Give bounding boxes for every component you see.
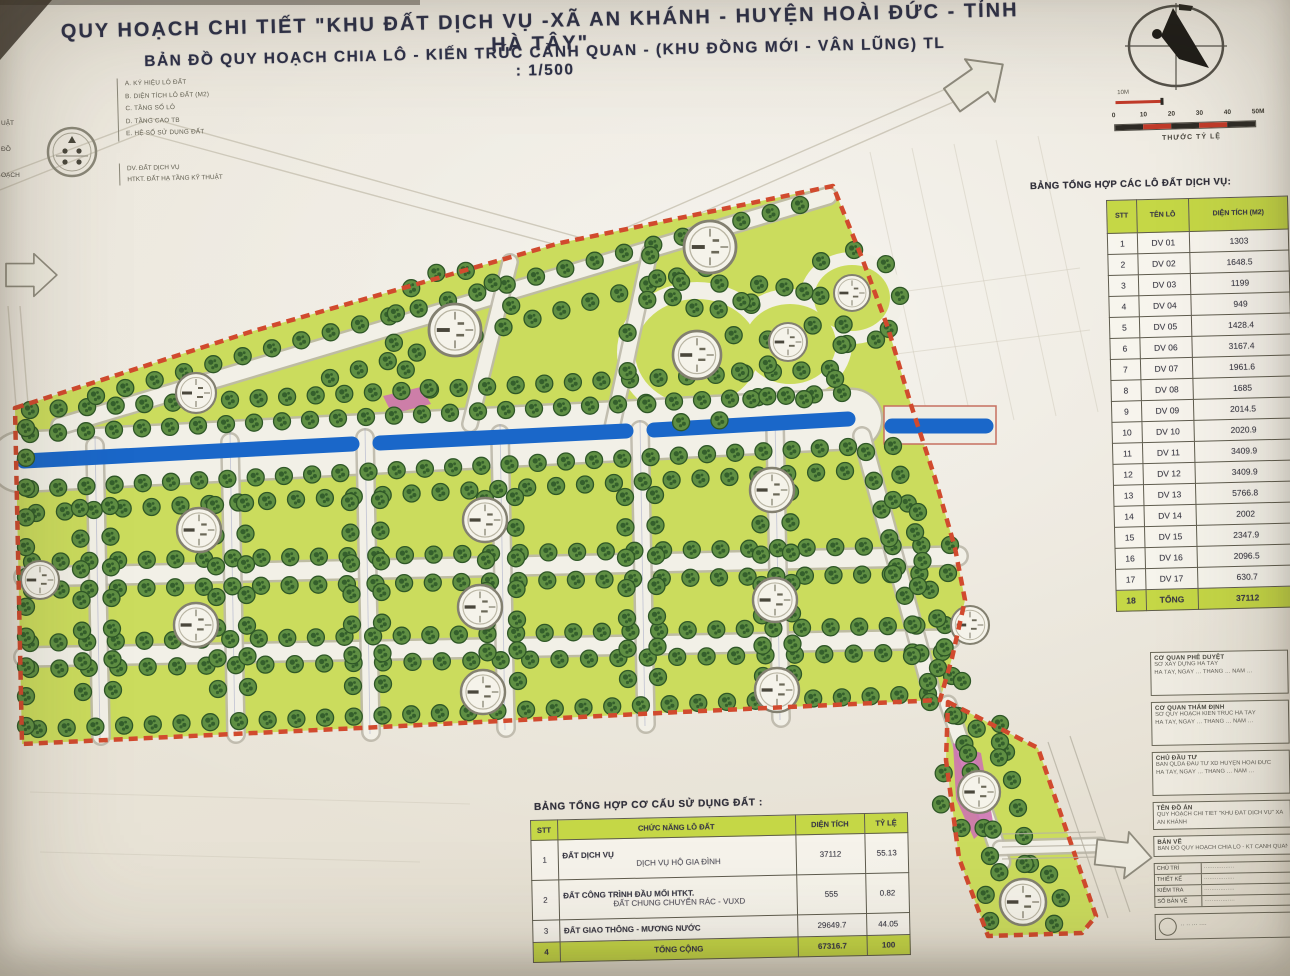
tree-icon: [495, 319, 512, 336]
tree-icon: [396, 575, 413, 592]
tree-icon: [364, 384, 381, 401]
tree-icon: [72, 530, 89, 547]
lot-symbol-icon: [958, 771, 1000, 813]
tree-icon: [605, 475, 622, 492]
table-cell: 3409.9: [1194, 439, 1290, 462]
table-cell: 100: [867, 935, 911, 956]
scale-tick-label: 10: [1140, 111, 1147, 118]
scale-mini-segment: [1115, 100, 1161, 104]
table-cell: 7: [1110, 359, 1140, 381]
tree-icon: [648, 547, 665, 564]
tree-icon: [237, 495, 254, 512]
tree-icon: [345, 708, 362, 725]
tree-icon: [648, 578, 665, 595]
scale-segment: [1115, 124, 1143, 130]
tree-icon: [274, 413, 291, 430]
tree-icon: [991, 749, 1008, 766]
tree-icon: [593, 623, 610, 640]
tree-icon: [173, 715, 190, 732]
tree-icon: [804, 317, 821, 334]
tree-icon: [385, 334, 402, 351]
tree-icon: [619, 610, 636, 627]
tree-icon: [851, 618, 868, 635]
tree-icon: [372, 492, 389, 509]
tree-icon: [881, 530, 898, 547]
lot-symbol-icon: [463, 498, 507, 542]
table-cell: DV 02: [1137, 252, 1190, 274]
tree-icon: [259, 712, 276, 729]
tree-icon: [106, 476, 123, 493]
tree-icon: [231, 713, 248, 730]
tree-icon: [733, 293, 750, 310]
tree-icon: [393, 383, 410, 400]
tree-icon: [575, 699, 592, 716]
column-header: STT: [1107, 200, 1137, 234]
tree-icon: [387, 305, 404, 322]
edge-fragment: ĐỒ: [1, 146, 11, 153]
tree-icon: [374, 645, 391, 662]
tree-icon: [463, 652, 480, 669]
tree-icon: [336, 385, 353, 402]
lot-symbol-icon: [750, 468, 794, 512]
tree-icon: [374, 614, 391, 631]
table-cell: 37112: [1198, 586, 1290, 609]
edge-fragment: UẬT: [1, 120, 14, 127]
tree-icon: [728, 647, 745, 664]
tree-icon: [350, 361, 367, 378]
table-cell: 5766.8: [1195, 481, 1290, 504]
tree-icon: [647, 487, 664, 504]
tree-icon: [498, 402, 515, 419]
tree-icon: [139, 658, 156, 675]
tree-icon: [1010, 800, 1027, 817]
tree-icon: [907, 524, 924, 541]
table-cell: 1: [531, 840, 558, 881]
tree-icon: [929, 610, 946, 627]
tree-icon: [18, 420, 35, 437]
tree-icon: [783, 441, 800, 458]
scale-segment: [1199, 122, 1227, 128]
tree-icon: [619, 324, 636, 341]
table-cell: DV 07: [1140, 357, 1193, 379]
tree-icon: [528, 268, 545, 285]
tree-icon: [708, 621, 725, 638]
tree-icon: [816, 646, 833, 663]
tree-icon: [190, 417, 207, 434]
tree-icon: [403, 485, 420, 502]
table-cell: DV 10: [1142, 420, 1195, 442]
tree-icon: [679, 622, 696, 639]
table-cell: 1: [1107, 233, 1137, 255]
column-header: TÊN LÔ: [1136, 198, 1189, 232]
tree-icon: [73, 592, 90, 609]
tree-icon: [960, 745, 977, 762]
tree-icon: [682, 569, 699, 586]
tree-icon: [205, 356, 222, 373]
tree-icon: [536, 375, 553, 392]
tree-icon: [686, 300, 703, 317]
tree-icon: [116, 717, 133, 734]
scale-bar: 10M 01020304050M THƯỚC TỶ LỆ: [1105, 86, 1282, 153]
lot-symbol-icon: [753, 578, 797, 622]
tree-icon: [518, 701, 535, 718]
tree-icon: [553, 302, 570, 319]
table-cell: 5: [1109, 317, 1139, 339]
tree-icon: [892, 287, 909, 304]
tree-icon: [569, 543, 586, 560]
tree-icon: [984, 821, 1001, 838]
tree-icon: [835, 316, 852, 333]
tree-icon: [106, 421, 123, 438]
title-block-staff: CHỦ TRÌ·················THIẾT KẾ········…: [1154, 860, 1290, 907]
tree-icon: [343, 586, 360, 603]
tree-icon: [794, 619, 811, 636]
lot-symbol-icon: [176, 373, 216, 413]
tree-icon: [694, 392, 711, 409]
tree-icon: [117, 380, 134, 397]
tree-icon: [50, 634, 67, 651]
tree-icon: [784, 635, 801, 652]
tree-icon: [751, 276, 768, 293]
stamp-circle-icon: [1159, 917, 1177, 935]
tree-icon: [551, 651, 568, 668]
tree-icon: [879, 618, 896, 635]
tree-icon: [642, 247, 659, 264]
table-cell: DV 14: [1144, 504, 1197, 526]
tree-icon: [234, 348, 251, 365]
tree-icon: [755, 443, 772, 460]
table-cell: ĐẤT DỊCH VỤDỊCH VỤ HỘ GIA ĐÌNH: [557, 835, 796, 880]
tree-icon: [288, 491, 305, 508]
tree-icon: [904, 648, 921, 665]
table-total-row: 18TỔNG37112: [1116, 586, 1290, 611]
tree-icon: [507, 519, 524, 536]
tree-icon: [281, 577, 298, 594]
table-cell: DV 03: [1138, 273, 1191, 295]
table-cell: TỔNG CỘNG: [560, 937, 798, 962]
tree-icon: [711, 275, 728, 292]
title-block-stamp: ·· ·· ··· ····: [1155, 911, 1290, 939]
tree-icon: [778, 387, 795, 404]
lot-symbol-icon: [21, 561, 59, 599]
table-cell: 630.7: [1197, 565, 1290, 588]
lot-symbol-icon: [834, 275, 870, 311]
tree-icon: [619, 640, 636, 657]
table-cell: 17: [1116, 569, 1146, 591]
tree-icon: [74, 653, 91, 670]
tree-icon: [410, 300, 427, 317]
tree-icon: [812, 287, 829, 304]
title-block-section: CHỦ ĐẦU TƯBAN QLDA ĐẦU TƯ XD HUYỆN HOÀI …: [1152, 750, 1290, 796]
tree-icon: [162, 418, 179, 435]
scale-tick-label: 0: [1112, 112, 1116, 119]
tree-icon: [375, 676, 392, 693]
table-cell: 2014.5: [1193, 397, 1290, 420]
tree-icon: [433, 653, 450, 670]
tree-icon: [617, 519, 634, 536]
table-cell: DV 04: [1138, 294, 1191, 316]
tree-icon: [138, 579, 155, 596]
tree-icon: [673, 273, 690, 290]
tree-icon: [442, 404, 459, 421]
table-cell: 1685: [1193, 376, 1290, 399]
tree-icon: [1052, 890, 1069, 907]
tree-icon: [808, 464, 825, 481]
tree-icon: [620, 671, 637, 688]
tree-icon: [238, 587, 255, 604]
tree-icon: [202, 714, 219, 731]
tree-icon: [360, 463, 377, 480]
tree-icon: [279, 629, 296, 646]
photo-edge-shadow: [0, 0, 420, 5]
tree-icon: [610, 396, 627, 413]
tree-icon: [450, 380, 467, 397]
tree-icon: [833, 336, 850, 353]
tree-icon: [683, 541, 700, 558]
tree-icon: [792, 197, 809, 214]
tree-icon: [307, 387, 324, 404]
table-cell: 12: [1113, 464, 1143, 486]
tree-icon: [743, 391, 760, 408]
tree-icon: [431, 705, 448, 722]
table-cell: 3409.9: [1195, 460, 1290, 483]
title-block-drawing: BẢN VẼ BẢN ĐỒ QUY HOẠCH CHIA LÔ - KT CẢN…: [1153, 834, 1290, 857]
tree-icon: [478, 552, 495, 569]
tree-icon: [577, 476, 594, 493]
tree-icon: [722, 390, 739, 407]
tree-icon: [293, 332, 310, 349]
tree-icon: [56, 503, 73, 520]
tree-icon: [253, 549, 270, 566]
tree-icon: [619, 363, 636, 380]
tree-icon: [564, 374, 581, 391]
tree-icon: [210, 681, 227, 698]
tree-icon: [698, 648, 715, 665]
tree-icon: [18, 449, 35, 466]
function-label: ĐẤT GIAO THÔNG - MƯƠNG NƯỚC: [564, 921, 796, 935]
tree-icon: [910, 578, 927, 595]
tree-icon: [877, 256, 894, 273]
tree-icon: [445, 459, 462, 476]
scale-tick-label: 30: [1196, 110, 1203, 117]
tree-icon: [136, 632, 153, 649]
tree-icon: [322, 370, 339, 387]
tree-icon: [845, 645, 862, 662]
tree-icon: [302, 411, 319, 428]
scale-segment: [1143, 124, 1171, 130]
tree-icon: [991, 864, 1008, 881]
tree-icon: [529, 454, 546, 471]
table-cell: 4: [533, 942, 560, 963]
tree-icon: [930, 660, 947, 677]
tree-icon: [275, 468, 292, 485]
tree-icon: [247, 469, 264, 486]
table-cell: DV 16: [1145, 546, 1198, 568]
tree-icon: [762, 205, 779, 222]
tree-icon: [104, 620, 121, 637]
scale-segment: [1227, 121, 1255, 127]
tree-icon: [282, 549, 299, 566]
tree-icon: [373, 584, 390, 601]
tree-icon: [386, 407, 403, 424]
table-cell: 1199: [1190, 271, 1290, 294]
tree-icon: [358, 409, 375, 426]
tree-icon: [51, 660, 68, 677]
table-cell: ĐẤT CÔNG TRÌNH ĐẦU MỐI HTKT.ĐẤT CHUNG CH…: [558, 875, 797, 920]
tree-icon: [345, 678, 362, 695]
tree-icon: [639, 396, 656, 413]
table-cell: 11: [1112, 443, 1142, 465]
table-cell: 9: [1111, 401, 1141, 423]
table-cell: 2: [1108, 254, 1138, 276]
tree-icon: [18, 509, 35, 526]
table-cell: 2347.9: [1196, 523, 1290, 546]
table-cell: 4: [1109, 296, 1139, 318]
table-cell: DV 09: [1141, 399, 1194, 421]
tree-icon: [317, 709, 334, 726]
tree-icon: [783, 544, 800, 561]
tree-icon: [582, 293, 599, 310]
tree-icon: [507, 489, 524, 506]
tree-icon: [316, 655, 333, 672]
tree-icon: [510, 673, 527, 690]
scale-caption: THƯỚC TỶ LỆ: [1116, 132, 1266, 143]
tree-icon: [342, 494, 359, 511]
tree-icon: [885, 566, 902, 583]
scale-tick-label: 50M: [1252, 108, 1265, 115]
tree-icon: [604, 698, 621, 715]
tree-icon: [332, 465, 349, 482]
tree-icon: [420, 380, 437, 397]
table-cell: TỔNG: [1146, 588, 1199, 610]
tree-icon: [524, 310, 541, 327]
tree-icon: [107, 397, 124, 414]
tree-icon: [793, 362, 810, 379]
table-cell: 67316.7: [798, 935, 868, 956]
road-direction-arrow-icon: [1094, 829, 1154, 881]
tree-icon: [586, 252, 603, 269]
tree-icon: [827, 370, 844, 387]
tree-icon: [776, 279, 793, 296]
table-cell: 2: [532, 880, 559, 921]
tree-icon: [461, 482, 478, 499]
table-cell: DV 17: [1145, 567, 1198, 589]
tree-icon: [393, 627, 410, 644]
tree-icon: [692, 470, 709, 487]
tree-icon: [727, 444, 744, 461]
tree-icon: [102, 528, 119, 545]
table-cell: 15: [1115, 527, 1145, 549]
tree-icon: [855, 538, 872, 555]
tree-icon: [840, 439, 857, 456]
scale-bar-segments: [1114, 120, 1256, 131]
table-cell: 55.13: [865, 833, 909, 874]
tree-icon: [169, 658, 186, 675]
tree-icon: [18, 479, 35, 496]
tree-icon: [416, 460, 433, 477]
table-cell: 16: [1115, 548, 1145, 570]
tree-icon: [711, 569, 728, 586]
tree-icon: [425, 546, 442, 563]
tree-icon: [663, 472, 680, 489]
tree-icon: [310, 576, 327, 593]
tree-icon: [616, 244, 633, 261]
lot-symbol-icon: [1000, 879, 1046, 925]
tree-icon: [264, 340, 281, 357]
tree-icon: [508, 581, 525, 598]
legend: A. KÝ HIỆU LÔ ĐẤTB. DIỆN TÍCH LÔ ĐẤT (M2…: [117, 74, 310, 185]
tree-icon: [208, 558, 225, 575]
table-cell: 2002: [1196, 502, 1290, 525]
tree-icon: [469, 284, 486, 301]
tree-icon: [74, 622, 91, 639]
tree-icon: [78, 423, 95, 440]
tree-icon: [526, 400, 543, 417]
tree-icon: [759, 388, 776, 405]
tree-icon: [78, 478, 95, 495]
tree-icon: [396, 547, 413, 564]
tree-icon: [72, 500, 89, 517]
column-header: TỶ LỆ: [864, 813, 908, 834]
tree-icon: [647, 517, 664, 534]
tree-icon: [639, 291, 656, 308]
tree-icon: [649, 638, 666, 655]
tree-icon: [509, 611, 526, 628]
tree-icon: [875, 645, 892, 662]
table-cell: 1303: [1189, 229, 1289, 252]
tree-icon: [1004, 772, 1021, 789]
tree-icon: [286, 656, 303, 673]
tree-icon: [554, 399, 571, 416]
tree-icon: [736, 620, 753, 637]
table-cell: 18: [1116, 590, 1146, 612]
tree-icon: [822, 619, 839, 636]
tree-icon: [87, 718, 104, 735]
tree-icon: [565, 624, 582, 641]
lot-symbol-icon: [174, 603, 218, 647]
tree-icon: [450, 626, 467, 643]
table-cell: 3: [1108, 275, 1138, 297]
table-cell: DV 13: [1143, 483, 1196, 505]
tree-icon: [557, 453, 574, 470]
tree-icon: [933, 796, 950, 813]
tree-icon: [507, 377, 524, 394]
column-header: STT: [531, 820, 558, 841]
tree-icon: [218, 416, 235, 433]
tree-icon: [310, 548, 327, 565]
tree-icon: [103, 559, 120, 576]
tree-icon: [138, 551, 155, 568]
tree-icon: [813, 253, 830, 270]
title-block-staff-row: SỐ BẢN VẼ·················: [1154, 894, 1290, 907]
tree-icon: [316, 490, 333, 507]
tree-icon: [388, 462, 405, 479]
tree-icon: [239, 648, 256, 665]
tree-icon: [796, 391, 813, 408]
table-cell: DV 12: [1143, 462, 1196, 484]
tree-icon: [167, 579, 184, 596]
tree-icon: [102, 498, 119, 515]
tree-icon: [88, 388, 105, 405]
tree-icon: [374, 707, 391, 724]
tree-icon: [536, 624, 553, 641]
tree-icon: [954, 673, 971, 690]
tree-icon: [50, 400, 67, 417]
edge-fragment: OẠCH: [1, 172, 20, 179]
scale-10m-label: 10M: [1117, 90, 1129, 96]
tree-icon: [403, 706, 420, 723]
tree-icon: [825, 567, 842, 584]
